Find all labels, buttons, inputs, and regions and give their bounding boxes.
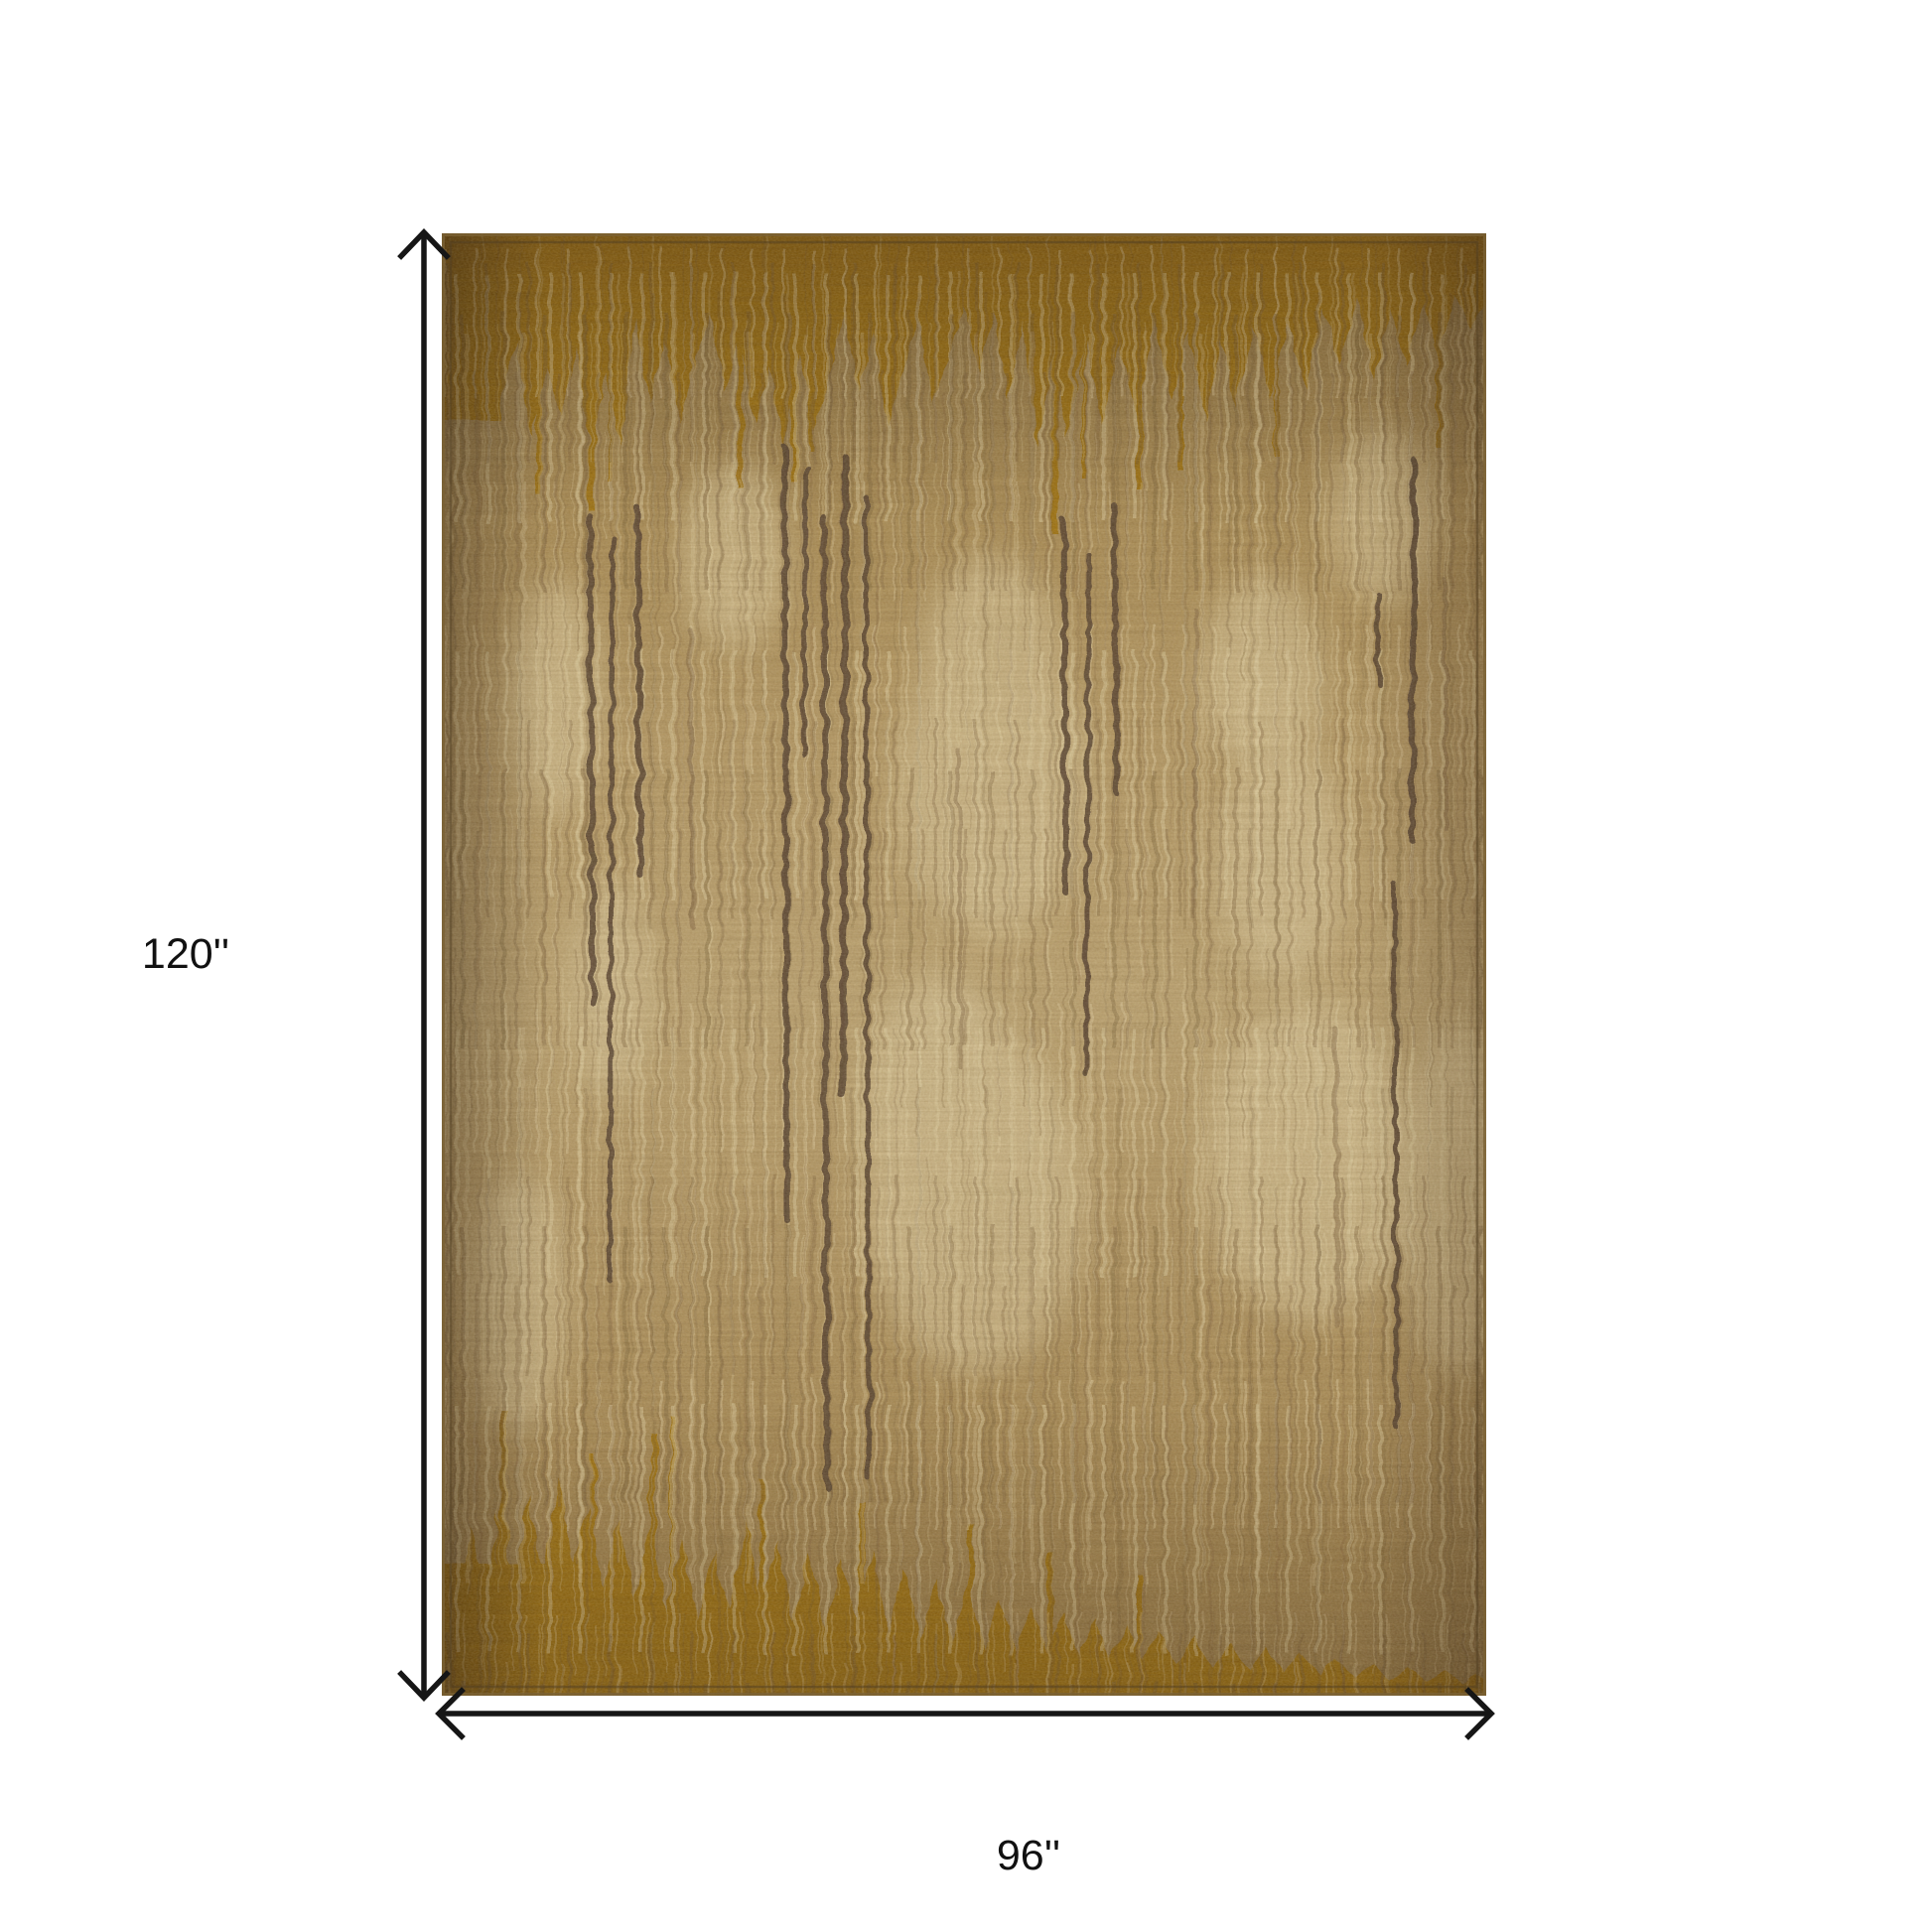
arrowhead-down-icon [401,1674,447,1698]
arrowhead-left-icon [439,1691,462,1736]
rug-image [442,233,1486,1696]
rug-art [442,233,1486,1696]
height-dimension-label: 120'' [142,930,229,978]
dimension-diagram: 120'' 96'' [0,0,1932,1932]
width-dimension-label: 96'' [997,1832,1060,1879]
arrowhead-right-icon [1468,1691,1491,1736]
rug-grain-light [442,233,1486,1696]
arrowhead-up-icon [401,232,447,256]
